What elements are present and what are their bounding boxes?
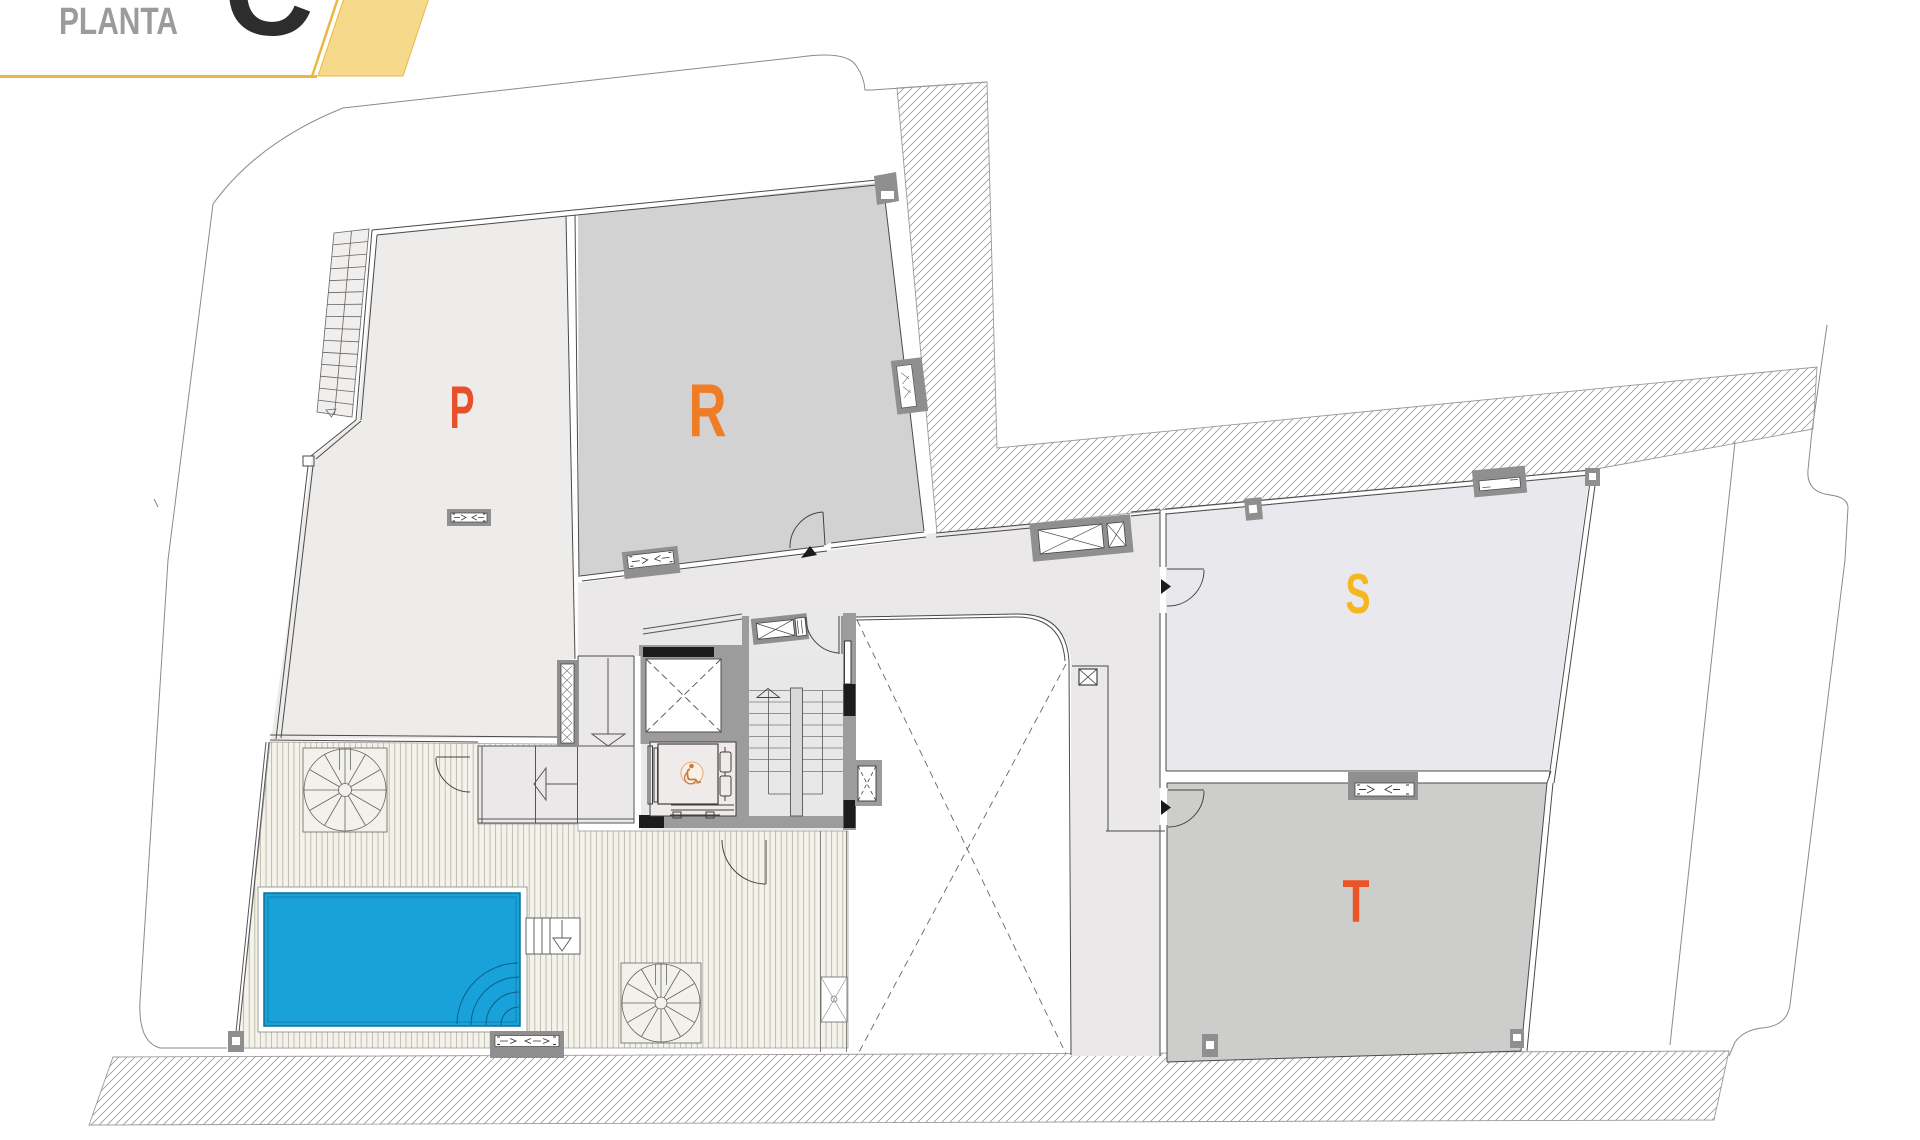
svg-text:R: R bbox=[689, 368, 727, 452]
svg-text:PLANTA: PLANTA bbox=[59, 1, 178, 43]
svg-text:P: P bbox=[450, 374, 475, 441]
svg-text:C: C bbox=[224, 0, 314, 62]
svg-text:S: S bbox=[1346, 562, 1371, 626]
svg-text:T: T bbox=[1343, 868, 1370, 935]
